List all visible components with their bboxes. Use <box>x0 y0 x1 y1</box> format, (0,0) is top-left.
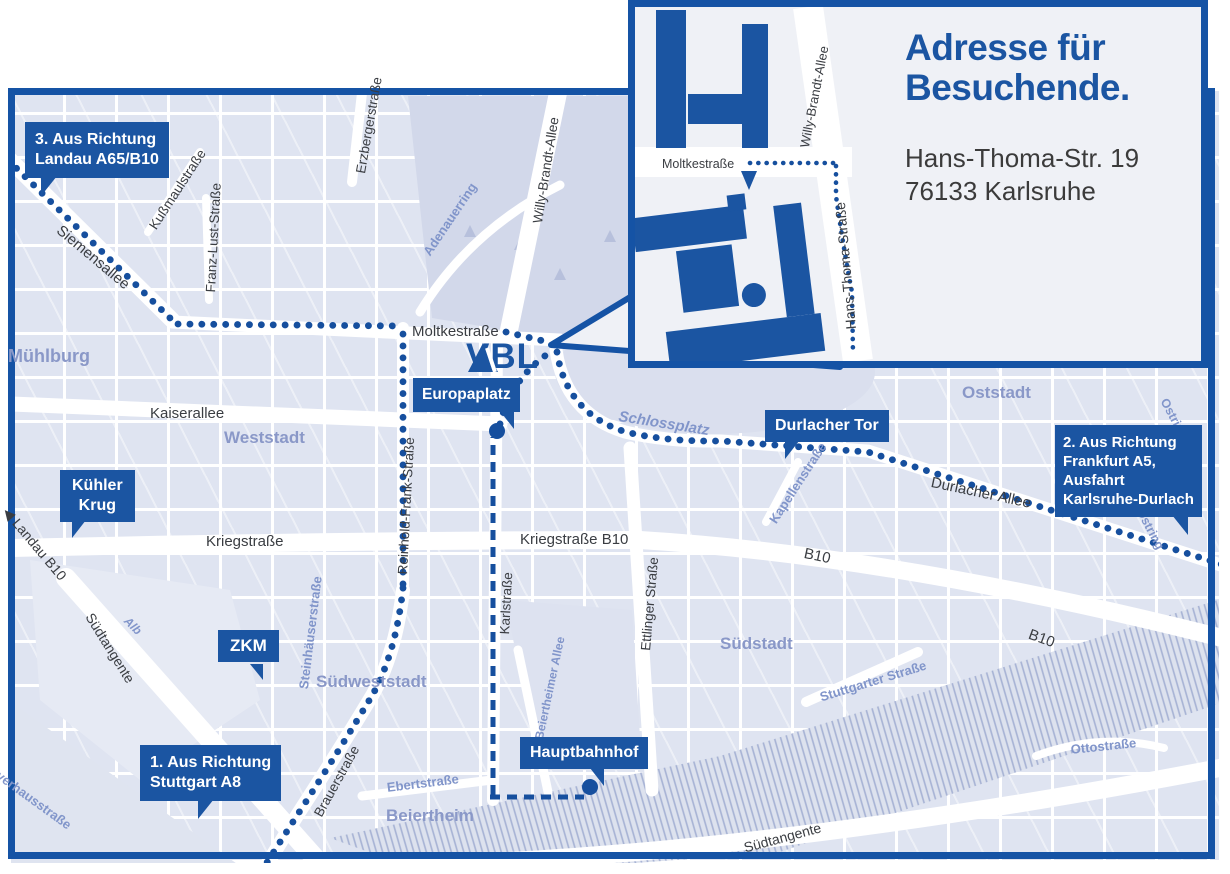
callout-tail <box>250 664 263 680</box>
karlsruhe-directions-map: { "colors": {"brand_blue":"#1b55a2","bor… <box>0 0 1230 874</box>
callout-tail <box>785 441 799 459</box>
district-label-suedstadt: Südstadt <box>720 634 793 654</box>
callout-durlacher-tor: Durlacher Tor <box>765 410 889 442</box>
callout-kuehler-krug: Kühler Krug <box>60 470 135 522</box>
street-label-kriegstrasse-b10: Kriegstraße B10 <box>520 531 628 548</box>
inset-street-label-moltkestrasse: Moltkestraße <box>662 157 734 171</box>
district-label-muehlburg: Mühlburg <box>8 346 90 367</box>
callout-tail <box>500 411 514 429</box>
callout-landau: 3. Aus Richtung Landau A65/B10 <box>25 122 169 178</box>
vbl-logo: VBL <box>466 340 539 374</box>
callout-tail <box>41 176 57 196</box>
vbl-building-footprints <box>635 10 825 361</box>
callout-tail <box>72 520 86 538</box>
callout-europaplatz: Europaplatz <box>413 378 520 412</box>
district-label-oststadt: Oststadt <box>962 383 1031 403</box>
street-label-kaiserallee: Kaiserallee <box>150 405 224 422</box>
entrance-arrow-icon <box>741 171 757 190</box>
vbl-triangle-icon <box>466 340 500 374</box>
callout-frankfurt: 2. Aus Richtung Frankfurt A5, Ausfahrt K… <box>1055 425 1202 517</box>
callout-zkm: ZKM <box>218 630 279 662</box>
inset-title: Adresse für Besuchende. <box>905 28 1130 108</box>
callout-stuttgart: 1. Aus Richtung Stuttgart A8 <box>140 745 281 801</box>
callout-tail <box>198 799 214 819</box>
district-label-suedweststadt: Südweststadt <box>316 672 427 692</box>
callout-tail <box>590 768 604 786</box>
inset-address: Hans-Thoma-Str. 19 76133 Karlsruhe <box>905 142 1139 208</box>
callout-tail <box>1172 515 1188 535</box>
street-label-kriegstrasse: Kriegstraße <box>206 533 284 550</box>
district-label-beiertheim: Beiertheim <box>386 806 474 826</box>
district-label-weststadt: Weststadt <box>224 428 305 448</box>
callout-hauptbahnhof: Hauptbahnhof <box>520 737 648 769</box>
